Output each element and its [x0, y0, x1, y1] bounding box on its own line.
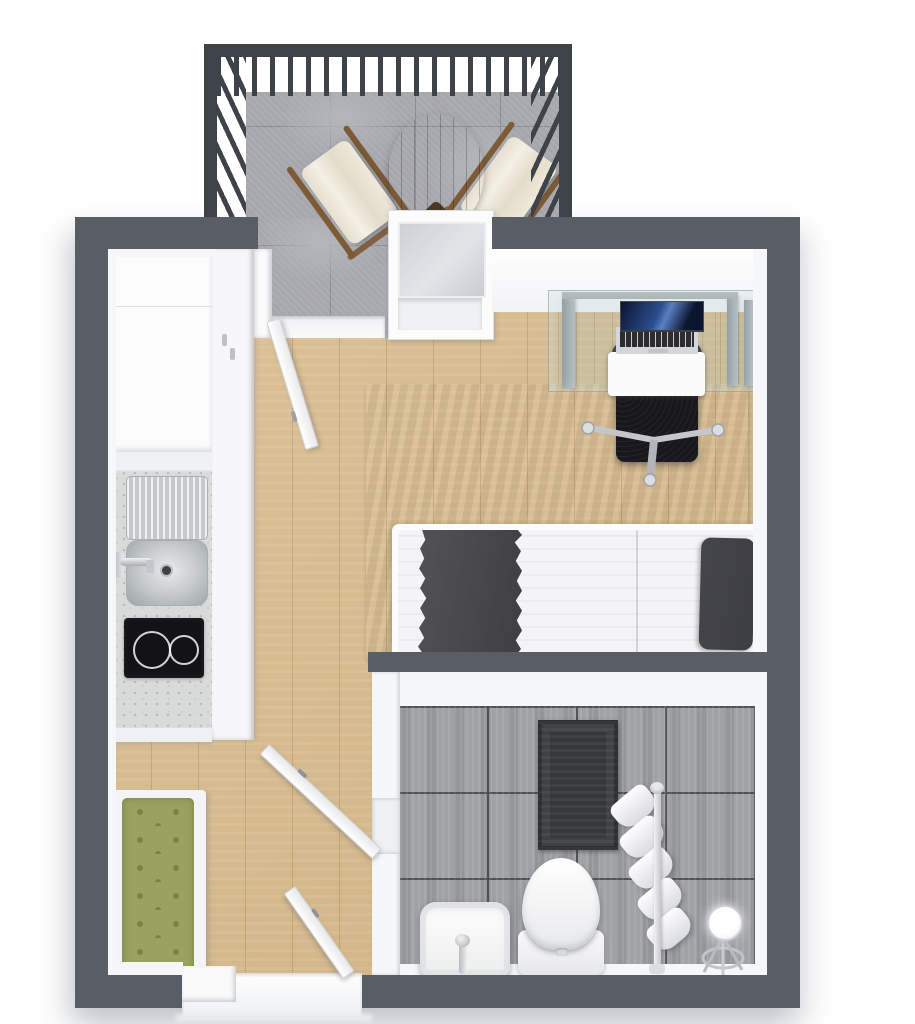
- duvet-fold-seam: [636, 530, 638, 654]
- laptop-keys: [620, 330, 694, 347]
- toilet-flush-button: [556, 948, 568, 956]
- laptop-trackpad: [648, 349, 668, 353]
- railing-right-rail: [559, 44, 572, 219]
- window-sill: [398, 298, 482, 330]
- railing-top-rail: [204, 44, 572, 57]
- wardrobe-handle: [230, 348, 235, 360]
- entrance-step: [182, 966, 236, 1002]
- wall-lining-bottom-left: [108, 962, 183, 975]
- green-tufted-bench-cushion: [122, 798, 194, 978]
- wall-lining-right: [753, 249, 767, 652]
- office-chair-star-base: [578, 392, 728, 492]
- wardrobe-handle: [222, 334, 227, 346]
- kitchen-cabinet-top: [110, 452, 212, 470]
- cooktop-burner-large: [133, 631, 171, 669]
- towel-stand-pole: [654, 788, 661, 972]
- window-glass: [398, 222, 486, 298]
- kitchen-base-cabinet: [110, 728, 212, 742]
- kitchen-faucet-spout: [146, 560, 154, 573]
- bathroom-partition-wall: [368, 652, 767, 672]
- wall-lining-top-left: [108, 249, 216, 257]
- cooktop-burner-small: [169, 635, 199, 665]
- kitchen-side-panel: [212, 248, 254, 740]
- sink-drainboard: [126, 476, 208, 540]
- railing-balusters-right: [531, 57, 559, 219]
- bathroom-wall-lining-top: [400, 672, 767, 708]
- towel-stand-foot: [649, 964, 665, 974]
- bathroom-wall-lining-right: [755, 672, 767, 975]
- railing-balusters-top: [216, 57, 560, 96]
- sink-drain: [162, 566, 171, 575]
- basin-faucet-spout: [455, 934, 470, 947]
- desk-pad: [608, 352, 705, 396]
- outer-wall-top-left: [75, 217, 258, 249]
- laptop-screen: [620, 301, 704, 332]
- wardrobe: [110, 248, 212, 452]
- entrance-shadow: [176, 1014, 372, 1022]
- outer-wall-top-right: [492, 217, 800, 249]
- wardrobe-door-seam: [110, 306, 212, 307]
- basin-faucet: [459, 944, 467, 974]
- balcony-door-threshold: [272, 316, 385, 338]
- outer-wall-bottom-right: [358, 975, 800, 1008]
- bed-pillow: [699, 537, 756, 650]
- outer-wall-left: [75, 217, 108, 1008]
- bath-mat: [538, 720, 618, 850]
- wall-lining-left: [108, 249, 116, 975]
- bed-dark-throw-blanket: [418, 530, 522, 654]
- outer-wall-bottom-left: [75, 975, 183, 1008]
- towel-stand-cap: [650, 782, 664, 794]
- vanity-mirror: [707, 905, 743, 941]
- outer-wall-right: [767, 217, 800, 1008]
- floorplan-render: [0, 0, 915, 1024]
